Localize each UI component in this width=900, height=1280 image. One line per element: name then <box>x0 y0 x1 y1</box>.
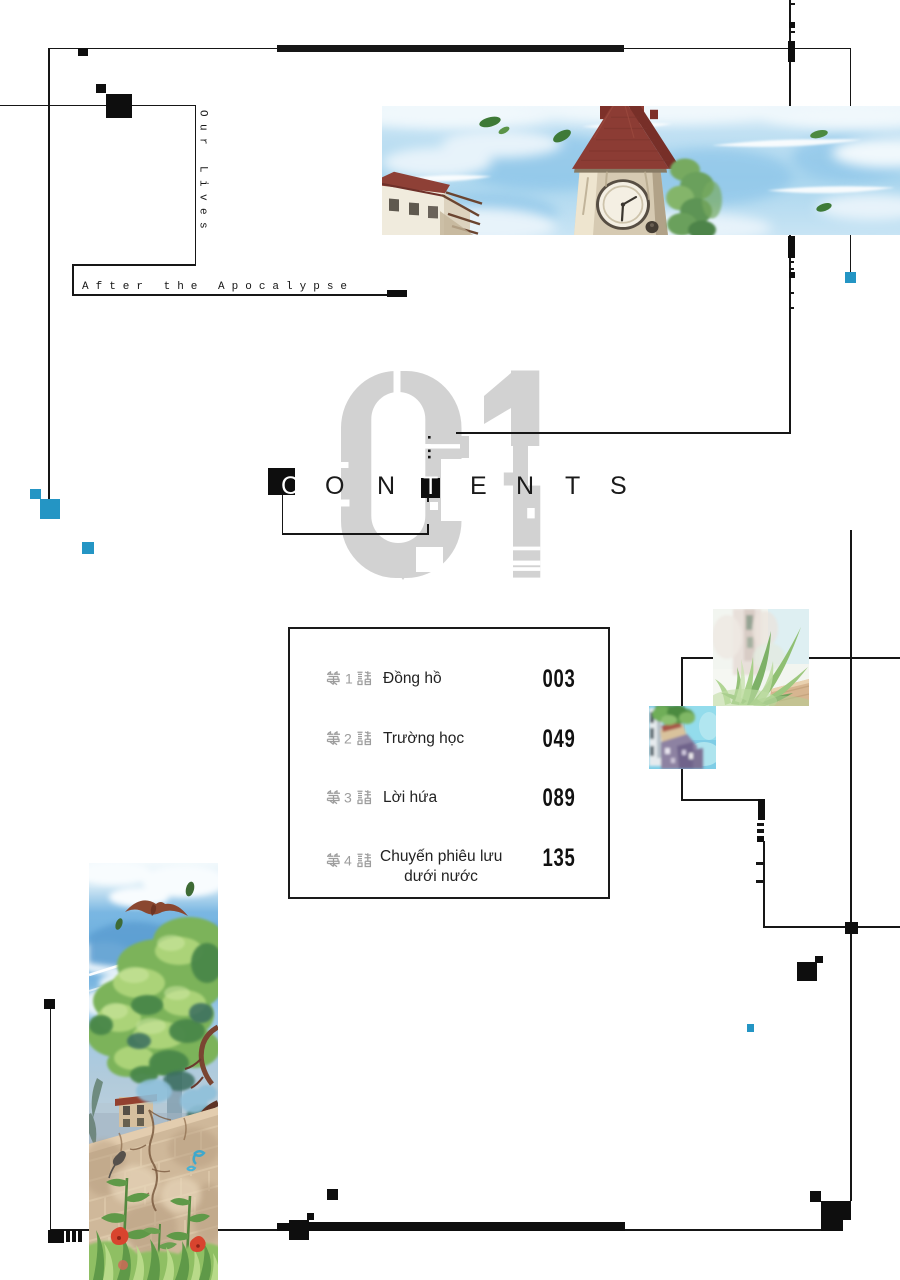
svg-text:3: 3 <box>344 790 352 805</box>
svg-text:1: 1 <box>345 671 353 686</box>
svg-text:2: 2 <box>344 731 352 746</box>
svg-text:4: 4 <box>344 853 352 868</box>
